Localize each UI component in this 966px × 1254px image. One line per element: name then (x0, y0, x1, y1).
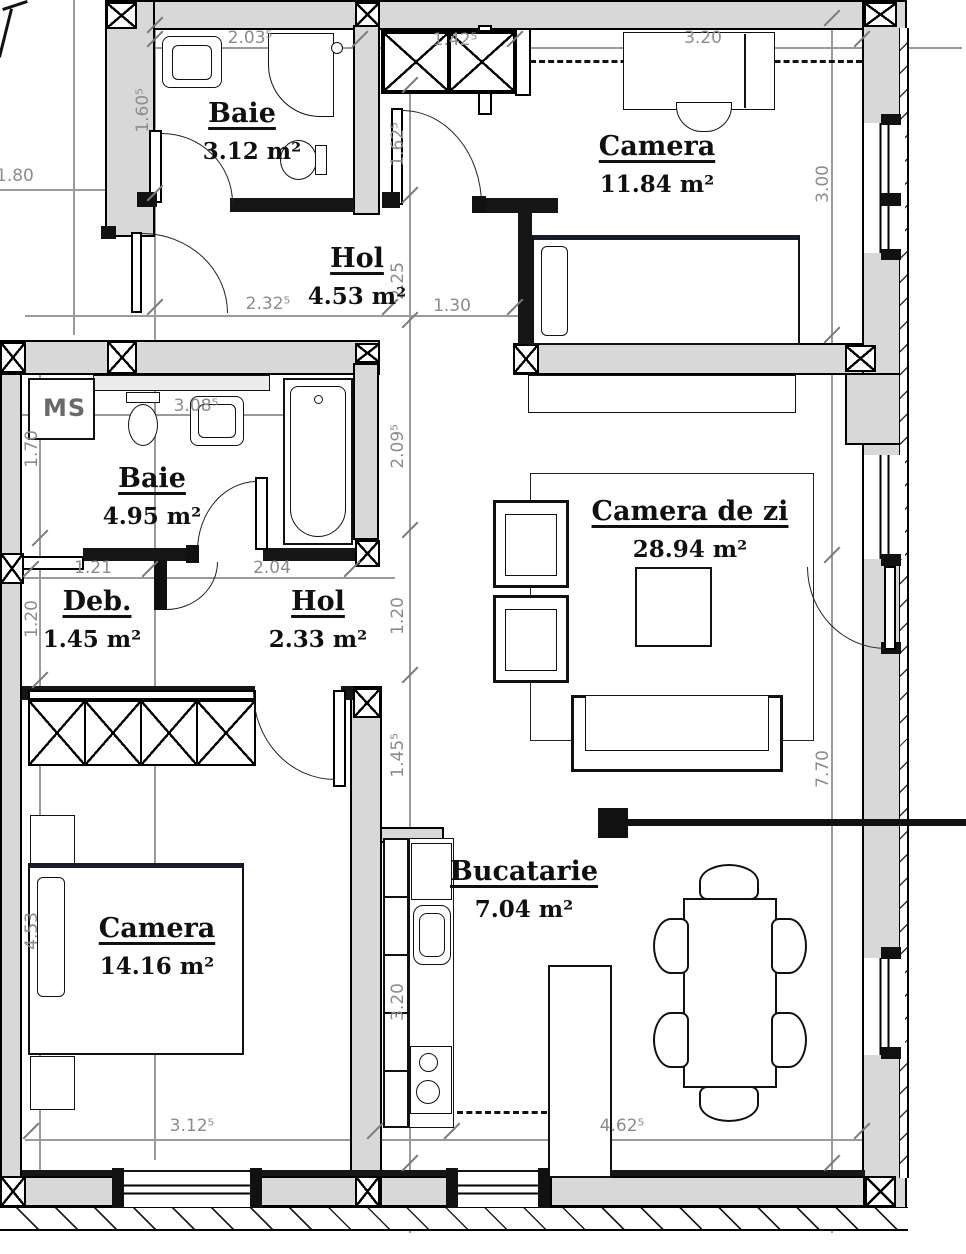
tv-stand (528, 375, 796, 413)
bedroom-wardrobe-cell (140, 700, 198, 766)
wall-bottom-a (22, 1176, 118, 1207)
dim-label: 3.20 (388, 983, 408, 1021)
dim-label: 1.80 (0, 166, 34, 186)
column (513, 344, 539, 374)
wall-mid-right (513, 343, 875, 375)
bedroom-wardrobe-cell (28, 700, 86, 766)
wall-bottom-b (258, 1176, 357, 1207)
armchair-seat (505, 514, 557, 576)
dim-tick (344, 561, 361, 578)
burner-icon (419, 1053, 438, 1072)
column (865, 1176, 896, 1207)
kitchen-dashed-line (457, 1111, 547, 1114)
door-arc-baie-mid (197, 481, 257, 551)
bedroom-wardrobe-cell (196, 700, 256, 766)
dim-line-left-outer (0, 189, 112, 191)
fridge (411, 843, 452, 900)
kitchen-island (548, 965, 612, 1178)
window-post (112, 1168, 124, 1208)
window-mullion (881, 1047, 901, 1059)
door-arc-balcony (807, 567, 886, 649)
room-area-deb: 1.45 m² (43, 626, 141, 653)
burner-icon (416, 1080, 440, 1104)
dim-label: 1.62⁵ (388, 122, 408, 167)
room-name-baie-top: Baie (208, 98, 276, 129)
wall-corridor (350, 686, 382, 1176)
column (353, 688, 381, 718)
dim-label: 1.30 (433, 296, 471, 316)
dim-label: 1.45⁵ (388, 733, 408, 778)
window-mullion (881, 554, 901, 566)
drawing-artifact (0, 8, 13, 57)
room-name-hol-mid: Hol (291, 586, 345, 617)
bedroom-wardrobe-top (28, 690, 256, 700)
dining-table (683, 898, 777, 1088)
window-kitchen-bottom (452, 1172, 550, 1207)
shower-tray (268, 33, 334, 117)
dining-chair (699, 1086, 759, 1122)
section-line (628, 819, 966, 826)
wall-bottom-c (380, 1176, 452, 1207)
dim-tick (23, 1123, 40, 1140)
dim-label: 3.20 (684, 28, 722, 48)
room-area-baie-mid: 4.95 m² (103, 503, 201, 530)
nightstand (30, 815, 75, 865)
toilet-bowl (128, 404, 158, 446)
column (107, 341, 137, 374)
dim-label: 2.09⁵ (388, 424, 408, 469)
drawing-artifact (2, 0, 28, 11)
kitchen-sink-basin (419, 913, 445, 957)
dim-label: 7.70 (813, 750, 833, 788)
dim-label: 1.21 (74, 558, 112, 578)
dim-label: 3.12⁵ (170, 1116, 215, 1136)
room-name-camera-top: Camera (599, 131, 715, 162)
room-area-camera-top: 11.84 m² (600, 171, 714, 198)
desk-chair (676, 102, 732, 132)
dim-label: 4.62⁵ (600, 1116, 645, 1136)
terrace-hatch-strip (0, 1207, 908, 1231)
wall-left-main (0, 373, 22, 1209)
door-post (186, 545, 199, 563)
nightstand (30, 1056, 75, 1110)
room-area-kitchen: 7.04 m² (475, 896, 573, 923)
wall-camera-top-left (518, 198, 532, 348)
dining-chair (653, 1012, 689, 1068)
window-bedroom-bottom (118, 1172, 258, 1207)
door-post (101, 226, 116, 239)
wall-baie-mid-right (353, 363, 379, 540)
column (0, 342, 26, 373)
floor-plan: MS (0, 0, 966, 1254)
dining-chair (699, 864, 759, 900)
dining-chair (771, 1012, 807, 1068)
window-dining-right (864, 958, 905, 1055)
door-post (382, 192, 400, 208)
door-post (472, 196, 486, 213)
column (864, 2, 897, 27)
room-area-living: 28.94 m² (633, 536, 747, 563)
window-mullion (881, 114, 901, 125)
door-arc-bedroom (253, 692, 335, 780)
dim-label: 4.53 (22, 912, 42, 950)
section-marker-square (598, 808, 628, 838)
window-living-right (864, 455, 905, 559)
sofa-seat (585, 695, 769, 751)
dim-label: 3.08⁵ (174, 396, 219, 416)
column (0, 553, 24, 584)
room-name-kitchen: Bucatarie (450, 856, 598, 887)
vanity-counter (93, 375, 270, 391)
dim-label: 2.32⁵ (246, 294, 291, 314)
bedroom-wardrobe-cell (84, 700, 142, 766)
door-arc-deb (166, 562, 218, 610)
sink-basin (172, 45, 212, 80)
coffee-table (635, 567, 712, 647)
room-name-living: Camera de zi (592, 496, 789, 527)
room-name-hol-top: Hol (330, 243, 384, 274)
dim-label: 1.60⁵ (133, 88, 153, 133)
drain-icon (331, 42, 343, 54)
column (845, 345, 876, 372)
pilaster-entry-right (515, 28, 531, 96)
room-area-baie-top: 3.12 m² (203, 138, 301, 165)
wall-bottom-d (550, 1176, 865, 1207)
wall-mid-left (0, 340, 380, 375)
pillow (541, 246, 568, 336)
column (106, 2, 137, 29)
dim-label: 1.70 (22, 430, 42, 468)
washing-machine-label: MS (43, 394, 86, 422)
column (355, 1176, 380, 1207)
door-leaf-hol-left (131, 232, 142, 313)
wall-top (105, 0, 905, 30)
bathtub-inner (290, 386, 346, 537)
wall-baie-top-right (353, 25, 380, 215)
wall-baie-top-bottom (230, 198, 354, 212)
column (355, 2, 380, 27)
armchair-seat (505, 609, 557, 671)
room-area-hol-top: 4.53 m² (308, 283, 406, 310)
dim-label: 3.00 (813, 165, 833, 203)
room-name-baie-mid: Baie (118, 463, 186, 494)
dining-chair (771, 918, 807, 974)
window-mullion (881, 947, 901, 959)
room-name-deb: Deb. (63, 586, 132, 617)
window-mullion (881, 249, 901, 260)
column (0, 1176, 26, 1207)
room-area-bedroom: 14.16 m² (100, 953, 214, 980)
faucet-icon (314, 395, 323, 404)
dim-label: 2.03⁵ (228, 28, 273, 48)
column (355, 343, 380, 363)
dim-label: 1.20 (22, 600, 42, 638)
room-area-hol-mid: 2.33 m² (269, 626, 367, 653)
wall-right-upper-living (845, 373, 907, 445)
window-post (250, 1168, 262, 1208)
window-mullion (881, 193, 901, 206)
dim-ext-x74 (73, 0, 75, 335)
window-post (446, 1168, 458, 1208)
dim-label: 2.04 (253, 558, 291, 578)
desk-divider (744, 34, 746, 108)
toilet-tank (315, 145, 327, 175)
window-camera-right (864, 123, 905, 253)
toilet-tank (126, 392, 160, 403)
dim-label: 1.42⁵ (433, 30, 478, 50)
dim-label: 1.20 (388, 597, 408, 635)
door-arc-hol-left (142, 233, 228, 313)
room-name-bedroom: Camera (99, 913, 215, 944)
bed (532, 235, 800, 345)
dining-chair (653, 918, 689, 974)
